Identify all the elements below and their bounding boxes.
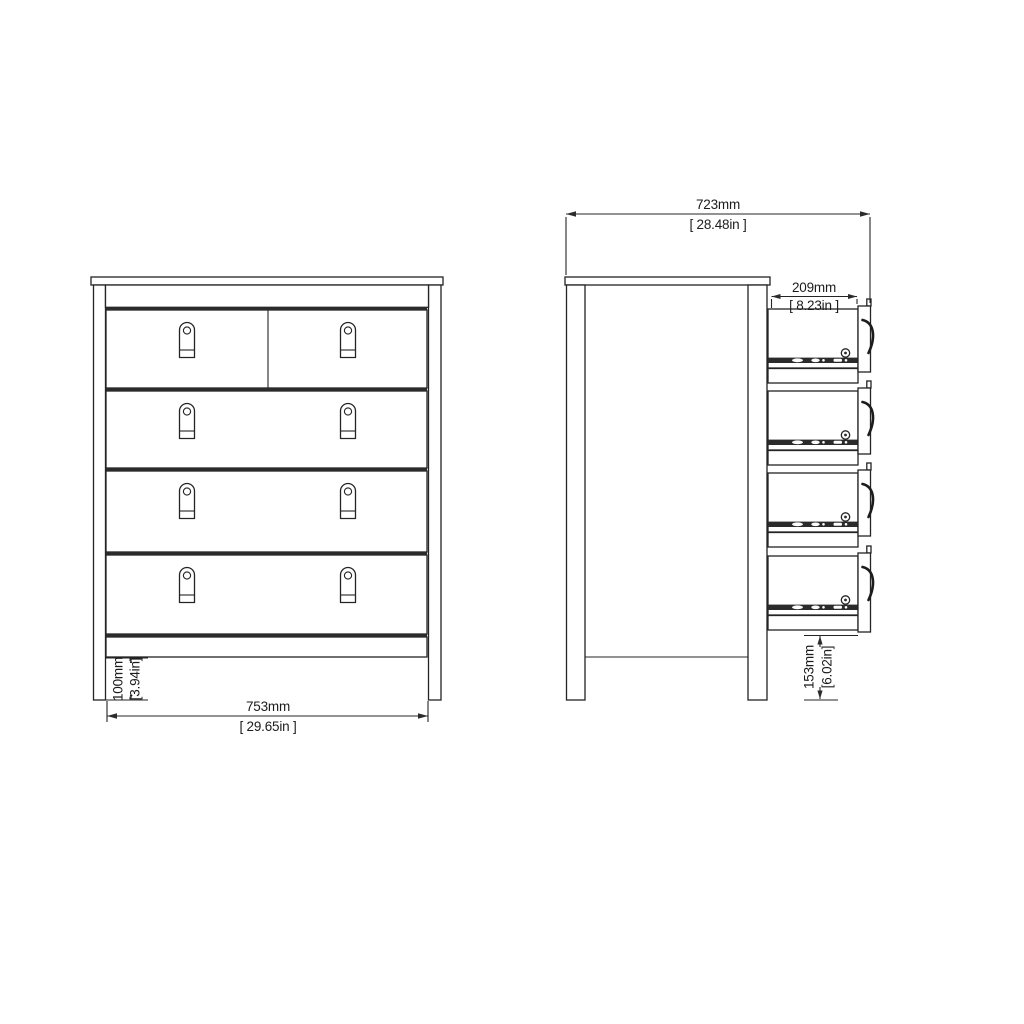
dim-label-metric: 723mm [696, 197, 740, 212]
drawer-front-edge [858, 388, 871, 454]
drawer-handle-icon [180, 484, 195, 519]
dim-label-metric: 153mm [802, 645, 817, 689]
rail-band [106, 634, 427, 637]
drawer-row-1 [106, 310, 427, 388]
dim-label-metric: 100mm [111, 657, 126, 701]
front-right-leg [429, 285, 442, 700]
open-drawer-3 [768, 463, 873, 547]
side-top-board [565, 277, 770, 285]
drawer-box-with-slide-rail [768, 556, 858, 630]
drawer-box-with-slide-rail [768, 309, 858, 383]
drawer-front-edge [858, 306, 871, 372]
side-front-leg [748, 285, 767, 700]
open-drawer-4 [768, 546, 873, 632]
drawer-handle-icon [180, 568, 195, 603]
arrow-right-icon [860, 211, 870, 216]
drawer-handle-icon [341, 404, 356, 439]
chest-of-drawers-technical-drawing: 100mm [3.94in] 753mm [ 29.65in ] [0, 0, 1024, 1024]
technical-drawing-page: 100mm [3.94in] 753mm [ 29.65in ] [0, 0, 1024, 1024]
dim-label-imperial: [6.02in] [820, 646, 835, 689]
drawer-row-3 [106, 471, 427, 552]
drawer-handle-icon [341, 484, 356, 519]
front-tab [867, 546, 871, 553]
drawer-row-2 [106, 391, 427, 468]
open-drawer-2 [768, 381, 873, 465]
dimension-drawer-depth: 209mm [ 8.23in ] [772, 280, 858, 313]
rail-band [106, 307, 427, 310]
drawer-handle-icon [180, 404, 195, 439]
dim-label-imperial: [ 29.65in ] [239, 719, 296, 734]
arrow-down-icon [817, 691, 822, 700]
arrow-right-icon [848, 294, 857, 299]
dim-label-metric: 209mm [792, 280, 836, 295]
front-bottom-rail [106, 637, 427, 657]
dimension-overall-width: 753mm [ 29.65in ] [107, 699, 428, 734]
front-view: 100mm [3.94in] 753mm [ 29.65in ] [91, 277, 443, 734]
drawer-box-with-slide-rail [768, 473, 858, 547]
front-tab [867, 463, 871, 470]
dim-label-imperial: [3.94in] [128, 658, 143, 701]
drawer-handle-icon [341, 568, 356, 603]
arrow-left-icon [772, 294, 781, 299]
drawer-handle-icon [341, 323, 356, 358]
rail-band [106, 468, 427, 471]
side-back-leg [567, 285, 586, 700]
front-top-rail [106, 285, 429, 307]
drawer-box-with-slide-rail [768, 391, 858, 465]
arrow-left-icon [107, 713, 117, 718]
dimension-floor-clearance: 153mm [6.02in] [802, 636, 859, 701]
drawer-front-edge [858, 470, 871, 536]
arrow-left-icon [566, 211, 576, 216]
dim-label-imperial: [ 8.23in ] [789, 298, 839, 313]
dim-label-imperial: [ 28.48in ] [689, 217, 746, 232]
arrow-up-icon [817, 636, 822, 645]
rail-band [106, 388, 427, 391]
arrow-right-icon [418, 713, 428, 718]
drawer-row-4 [106, 555, 427, 634]
front-tab [867, 381, 871, 388]
drawer-front-edge [858, 553, 871, 632]
drawer-handle-icon [180, 323, 195, 358]
side-view: 723mm [ 28.48in ] 209mm [ 8.23in ] 153mm… [565, 197, 873, 700]
front-left-leg [94, 285, 106, 700]
dimension-plinth-height: 100mm [3.94in] [106, 657, 148, 701]
dim-label-metric: 753mm [246, 699, 290, 714]
rail-band [106, 552, 427, 555]
front-top-board [91, 277, 443, 285]
